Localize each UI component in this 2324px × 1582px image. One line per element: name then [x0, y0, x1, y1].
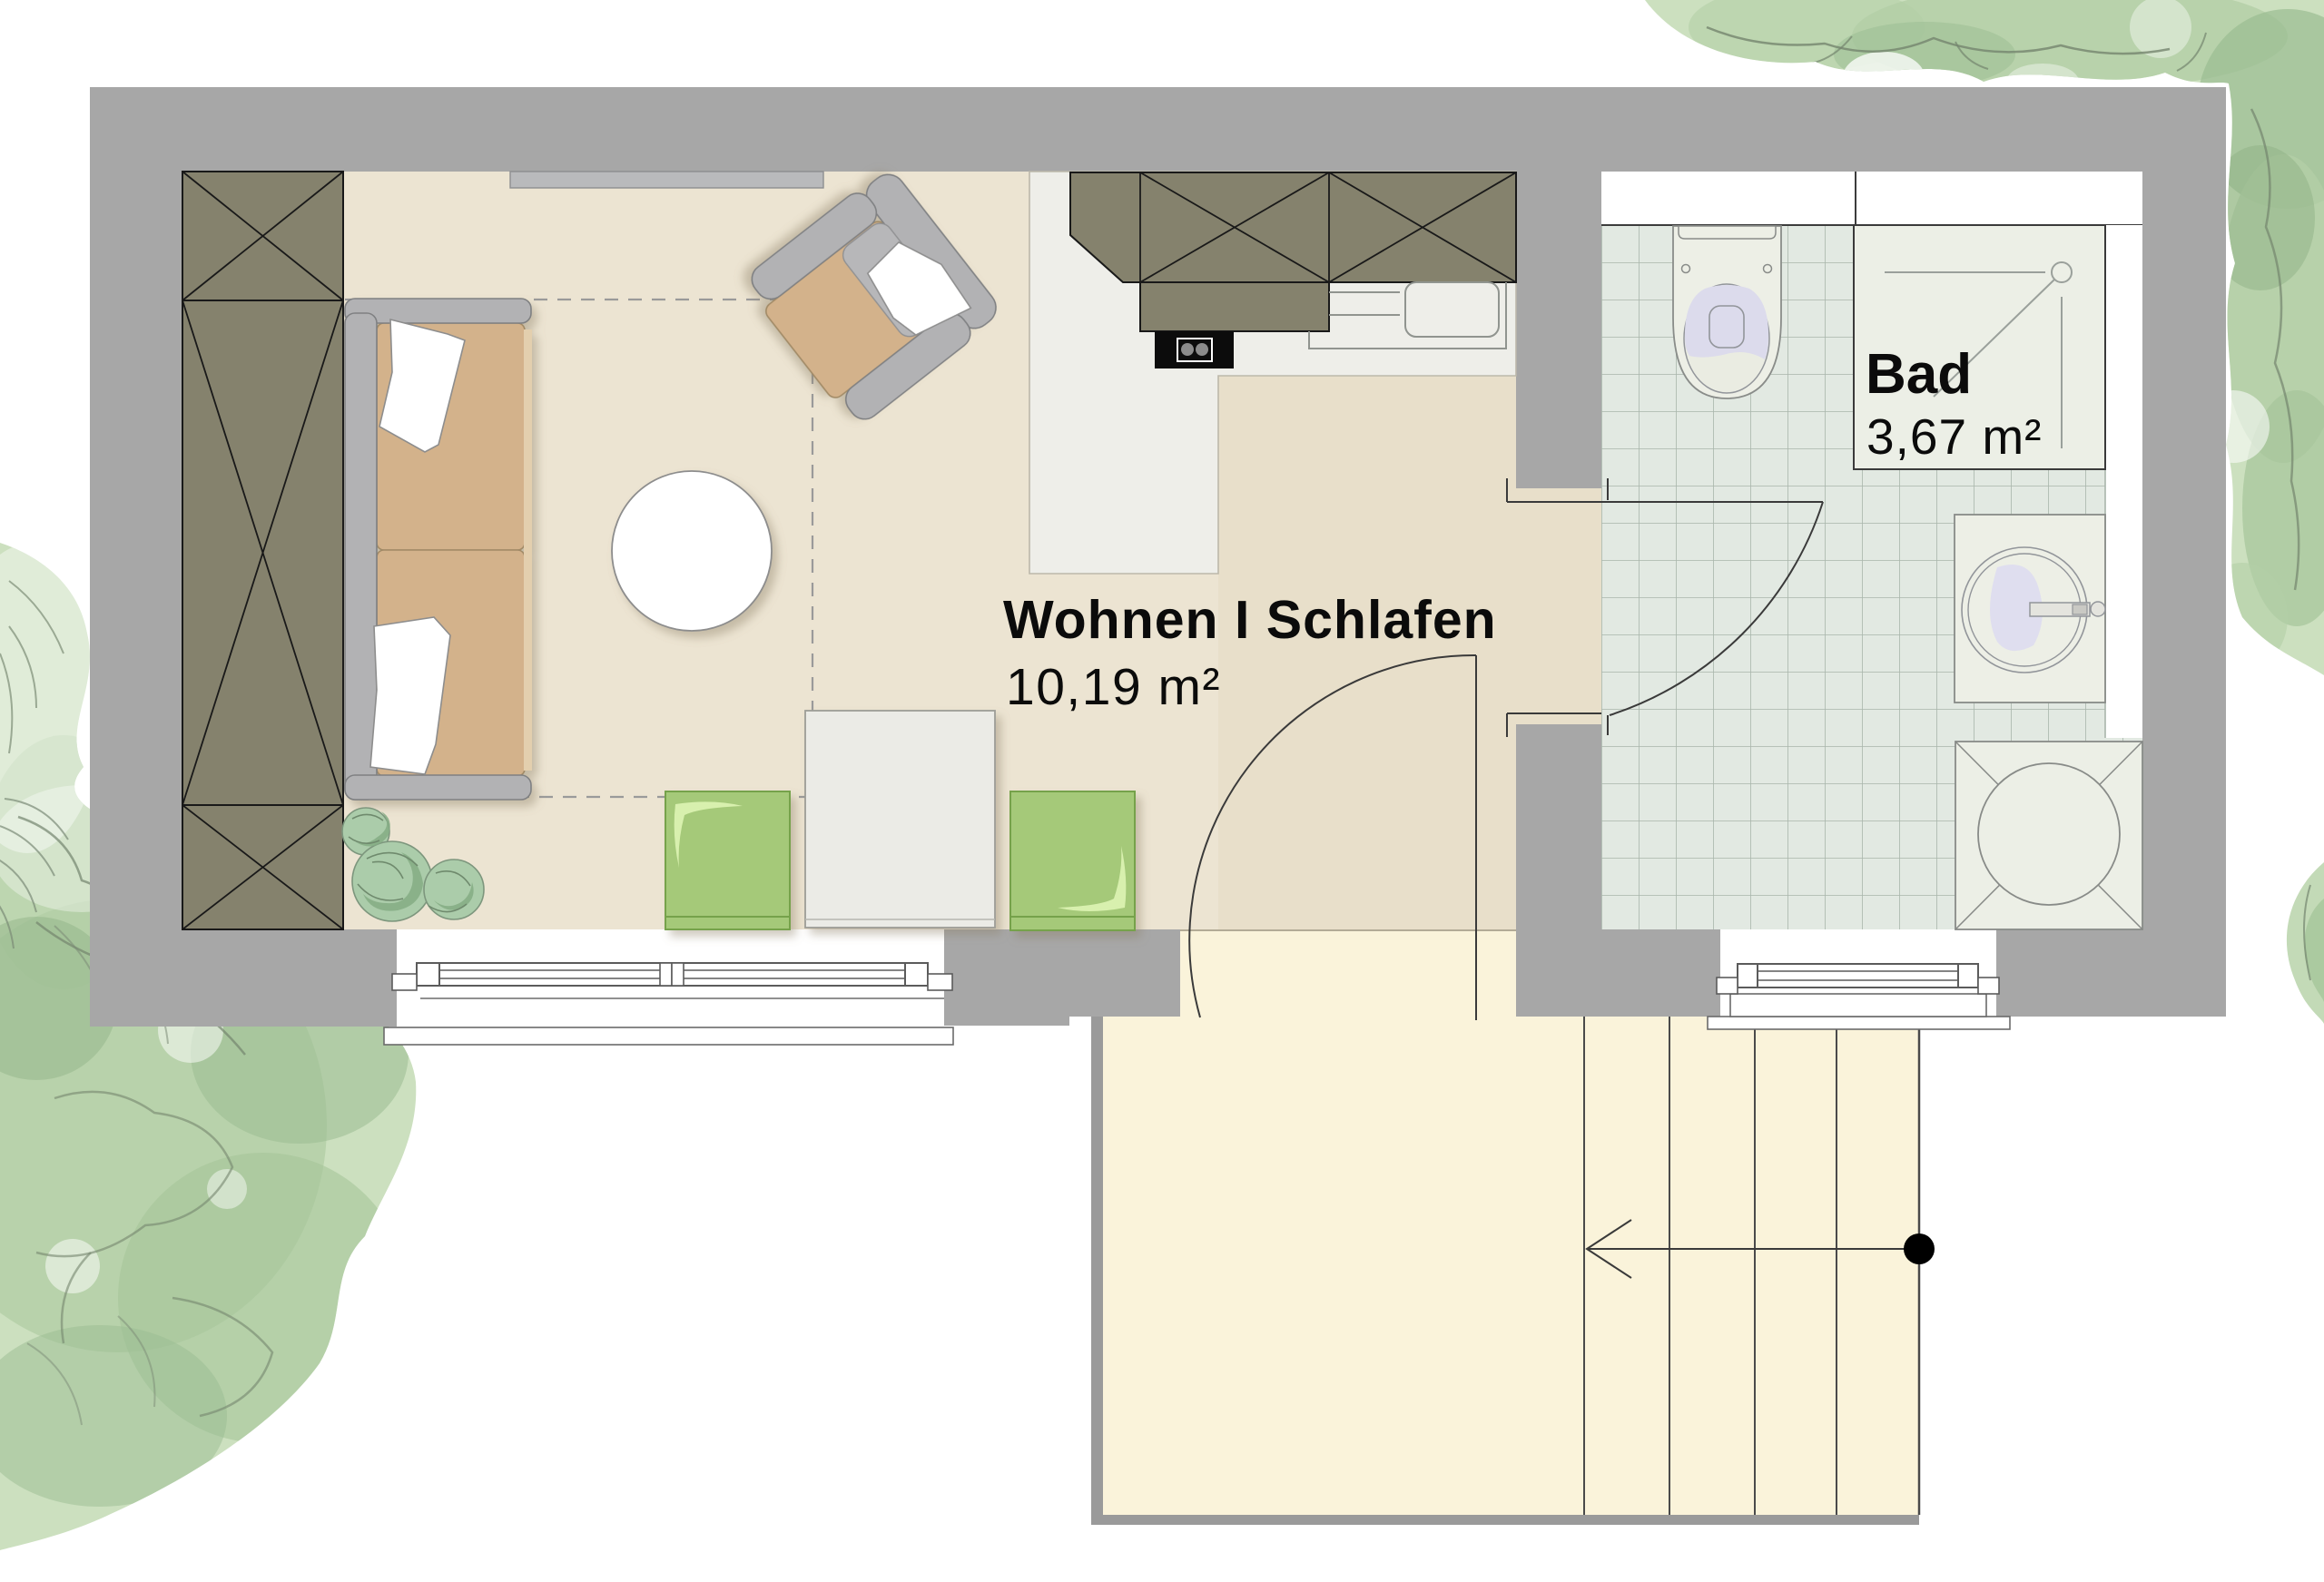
svg-text:10,19 m²: 10,19 m² — [1006, 658, 1221, 716]
svg-text:3,67 m²: 3,67 m² — [1866, 408, 2042, 465]
svg-text:Bad: Bad — [1866, 343, 1972, 406]
svg-text:Wohnen I Schlafen: Wohnen I Schlafen — [1003, 590, 1497, 650]
